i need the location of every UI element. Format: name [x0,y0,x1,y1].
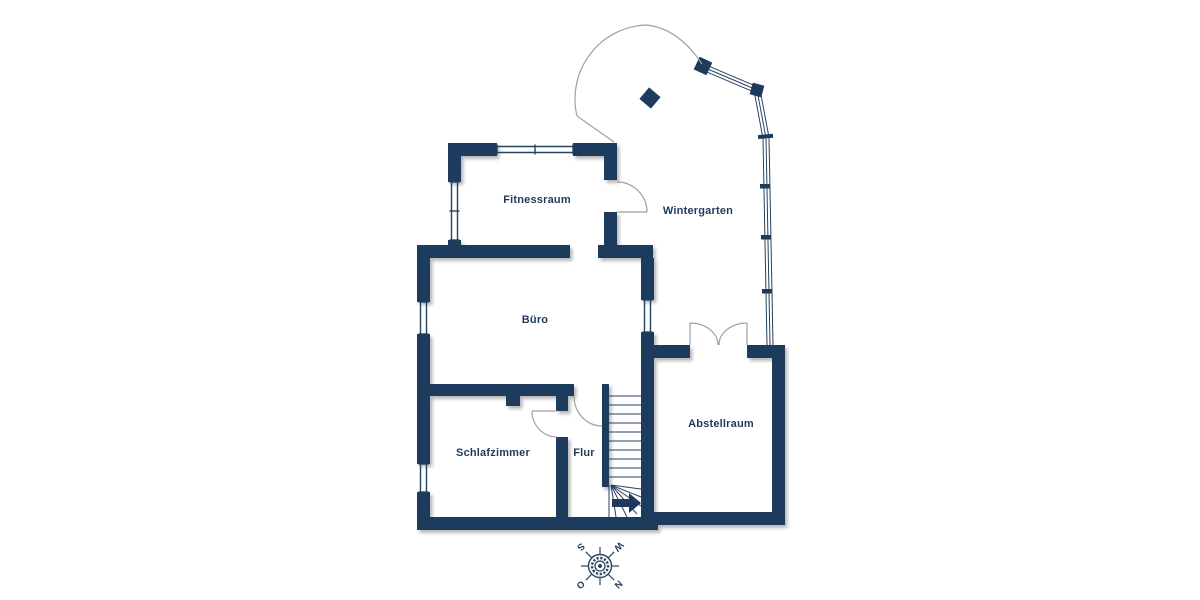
door-wintergarten-north [575,25,702,142]
wall-exterior-right-lower [641,332,654,530]
wall-exterior-bottom [417,517,658,530]
glazing-segment-corner [754,90,769,139]
wall-partition-main [556,437,568,530]
glazing-segment-upper [702,64,758,93]
wall-abstellraum-bottom [654,512,785,525]
room-label-schlafzimmer: Schlafzimmer [456,447,530,459]
door-flur-schlafzimmer [532,411,557,437]
wall-stair-left [602,384,609,487]
window-buero-west [419,302,429,334]
floor-plan: N O S W Fitnessraum Wintergarten Büro Sc… [0,0,1200,600]
wall-fitness-top-right [573,143,617,156]
window-fitnessraum-west [450,182,460,240]
wall-fitness-top-left [448,143,497,156]
door-fitnessraum-wintergarten [617,182,647,212]
post-icon [639,87,660,108]
room-label-flur: Flur [573,447,595,459]
compass-west-label: W [611,539,625,553]
wall-schlafzimmer-top [417,384,574,396]
wall-fitness-right-lower [604,212,617,245]
window-fitnessraum-north [497,145,573,155]
wall-fitness-right-upper [604,156,617,180]
window-schlafzimmer-west [419,464,429,492]
floor-plan-drawing: N O S W [0,0,1200,600]
door-abstellraum-double [690,323,747,345]
wall-partition-stub [556,396,568,411]
doors [532,25,747,437]
compass-east-label: O [574,578,587,591]
room-label-wintergarten: Wintergarten [663,205,733,217]
wall-exterior-left-mid [417,334,430,464]
window-buero-east [643,300,653,332]
post-icon [694,57,713,76]
compass-south-label: S [574,540,586,552]
glazing-segment-east [763,138,773,345]
wall-abstellraum-right [772,345,785,525]
wall-pillar [506,396,520,406]
staircase [609,396,641,517]
room-label-buero: Büro [522,314,548,326]
compass-rose-icon: N O S W [555,520,644,600]
room-label-fitnessraum: Fitnessraum [503,194,571,206]
wall-buero-top-right [598,245,653,258]
walls [417,143,785,530]
wall-exterior-right-upper [641,258,654,300]
door-buero-flur [574,396,602,426]
wall-buero-top-left [417,245,570,258]
wintergarten-posts [639,57,764,109]
wall-exterior-left-upper [417,258,430,302]
wall-abstellraum-top-left [654,345,690,358]
room-label-abstellraum: Abstellraum [688,418,754,430]
wall-fitness-left-upper [448,156,461,182]
